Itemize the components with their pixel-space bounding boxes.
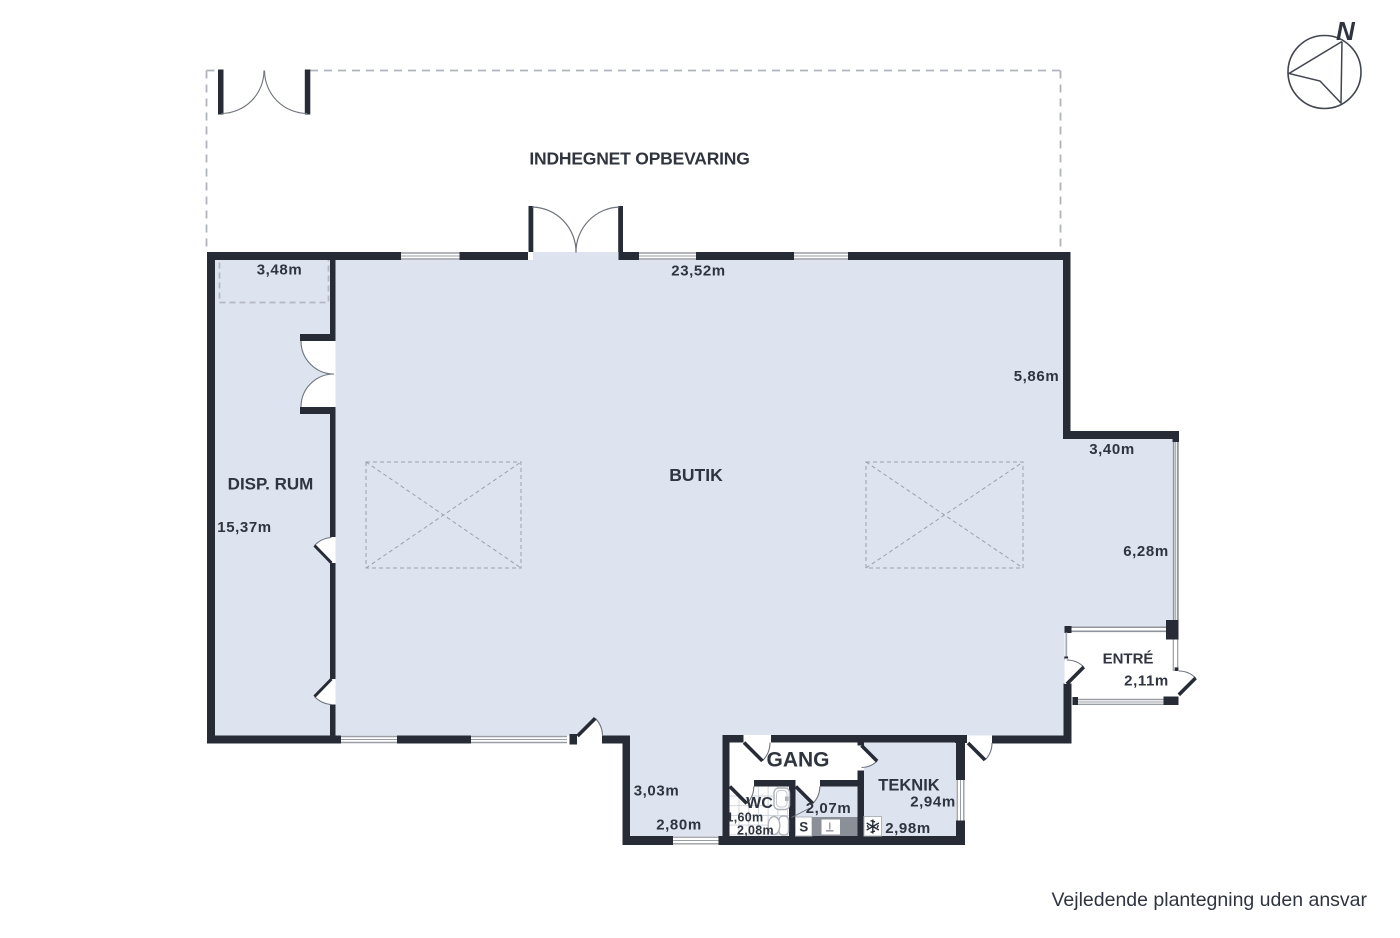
svg-text:BUTIK: BUTIK (669, 465, 723, 485)
svg-text:GANG: GANG (767, 749, 830, 772)
svg-text:N: N (1336, 16, 1356, 46)
svg-text:DISP. RUM: DISP. RUM (228, 475, 314, 494)
svg-text:15,37m: 15,37m (217, 519, 271, 536)
svg-text:Vejledende plantegning uden an: Vejledende plantegning uden ansvar (1051, 889, 1367, 911)
svg-text:2,11m: 2,11m (1124, 673, 1169, 690)
svg-text:3,03m: 3,03m (634, 783, 680, 800)
svg-text:INDHEGNET OPBEVARING: INDHEGNET OPBEVARING (529, 149, 749, 169)
svg-text:5,86m: 5,86m (1014, 368, 1060, 385)
svg-text:2,80m: 2,80m (656, 817, 702, 834)
svg-text:2,08m: 2,08m (737, 824, 774, 838)
svg-text:WC: WC (746, 795, 773, 812)
svg-text:2,07m: 2,07m (806, 800, 852, 817)
svg-text:2,98m: 2,98m (885, 820, 931, 837)
svg-text:TEKNIK: TEKNIK (878, 777, 940, 795)
svg-text:6,28m: 6,28m (1123, 543, 1169, 560)
svg-text:3,40m: 3,40m (1089, 441, 1135, 458)
svg-text:1,60m: 1,60m (727, 811, 764, 825)
svg-text:2,94m: 2,94m (910, 794, 956, 811)
svg-text:3,48m: 3,48m (257, 262, 303, 279)
svg-text:23,52m: 23,52m (671, 263, 725, 280)
svg-text:ENTRÉ: ENTRÉ (1103, 651, 1154, 668)
svg-text:S: S (799, 820, 808, 835)
